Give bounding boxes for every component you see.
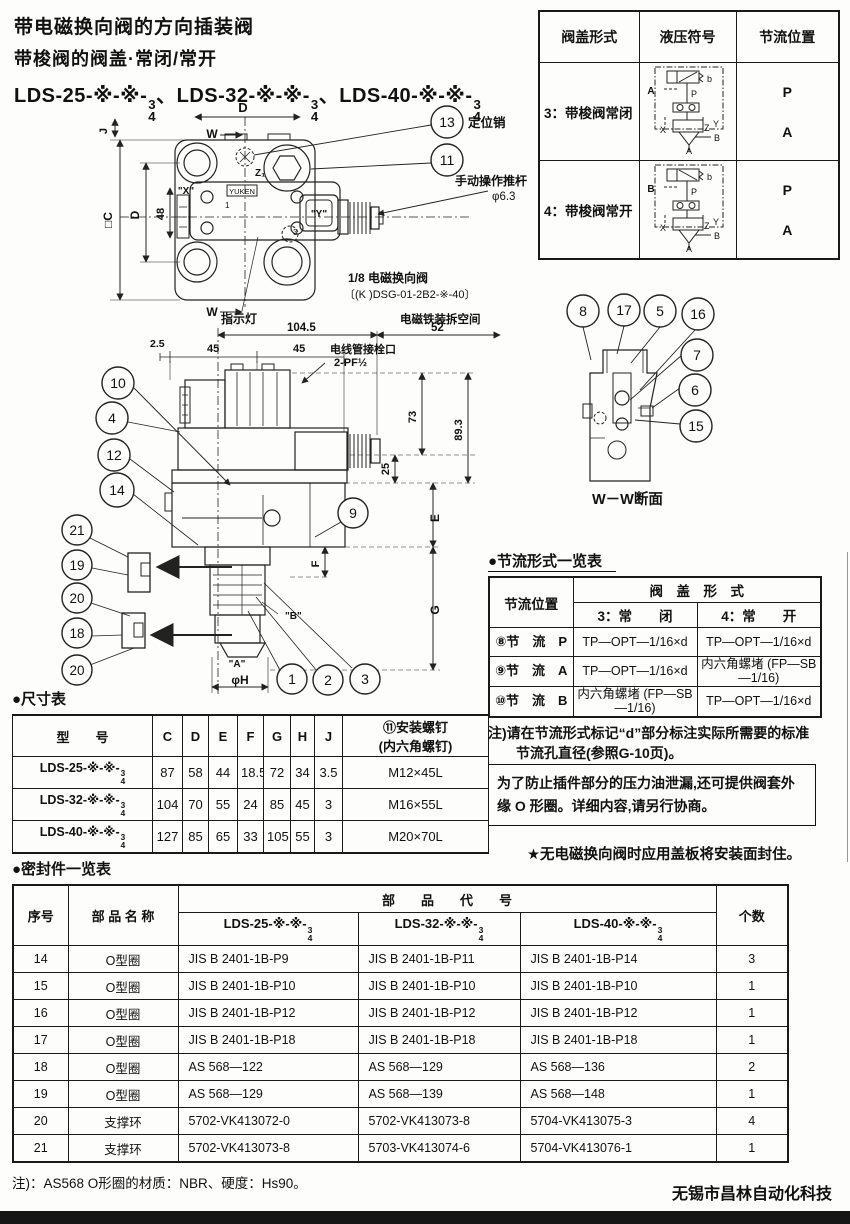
side-view-dimensions [62, 331, 500, 695]
dimension-table: 型 号 C D E F G H J ⑪安装螺钉(内六角螺钉) LDS-25-※-… [12, 714, 489, 854]
port-y-label: "Y" [311, 209, 327, 220]
cell-model: LDS-32-※-※-34 [13, 789, 153, 821]
cell-code-32: JIS B 2401-1B-P18 [358, 1027, 520, 1054]
datasheet-page: 带电磁换向阀的方向插装阀 带梭阀的阀盖·常闭/常开 LDS-25-※-※-34、… [0, 0, 850, 1224]
header-normally-closed: 3：常 闭 [573, 603, 697, 628]
dim-48-label: 48 [155, 208, 167, 220]
seal-parts-table: 序号 部 品 名 称 部 品 代 号 个数 LDS-25-※-※-34 LDS-… [12, 884, 789, 1163]
page-title: 带电磁换向阀的方向插装阀 [14, 12, 524, 39]
balloon-5: 5 [656, 303, 664, 319]
page-margin-rule [847, 552, 848, 862]
balloon-18: 18 [69, 626, 84, 641]
company-footer: 无锡市昌林自动化科技 [672, 1180, 832, 1204]
cell-no: 18 [13, 1054, 68, 1081]
cell-j: 3 [315, 789, 343, 821]
sym-port-side: B [714, 231, 720, 241]
cell-code-40: JIS B 2401-1B-P10 [520, 973, 716, 1000]
solenoid-valve-model: 〔(K )DSG-01-2B2-※-40〕 [344, 288, 475, 301]
dim-25: 25 [380, 463, 392, 475]
cover-table-header-row: 阀盖形式 液压符号 节流位置 [539, 11, 839, 63]
balloon-7: 7 [693, 347, 701, 363]
cell-e: 65 [209, 821, 238, 854]
dim-j-label: J [98, 128, 110, 134]
header-screw: ⑪安装螺钉(内六角螺钉) [343, 715, 489, 757]
cell-c: 104 [153, 789, 183, 821]
balloon-1: 1 [288, 671, 296, 687]
seal-row-14: 14 O型圈 JIS B 2401-1B-P9 JIS B 2401-1B-P1… [13, 946, 788, 973]
header-normally-open: 4：常 开 [697, 603, 821, 628]
balloon-16: 16 [690, 306, 706, 322]
cover-form-label: 4：带梭阀常开 [539, 161, 639, 260]
cell-d: 70 [183, 789, 209, 821]
cell-pos-a: ⑨节 流 A [489, 657, 573, 687]
cell-code-40: AS 568—136 [520, 1054, 716, 1081]
seal-row-17: 17 O型圈 JIS B 2401-1B-P18 JIS B 2401-1B-P… [13, 1027, 788, 1054]
seal-row-19: 19 O型圈 AS 568—129 AS 568—139 AS 568—148 … [13, 1081, 788, 1108]
cell-code-32: JIS B 2401-1B-P12 [358, 1000, 520, 1027]
hydraulic-symbol-open: B b P X Z Y B A [643, 161, 735, 253]
cell-j: 3 [315, 821, 343, 854]
cell-qty: 1 [716, 973, 788, 1000]
cell-code-32: AS 568—129 [358, 1054, 520, 1081]
seal-row-15: 15 O型圈 JIS B 2401-1B-P10 JIS B 2401-1B-P… [13, 973, 788, 1000]
dimension-row-lds40: LDS-40-※-※-34 127 85 65 33 105 55 3 M20×… [13, 821, 489, 854]
cell-name: O型圈 [68, 1054, 178, 1081]
cell-name: O型圈 [68, 1081, 178, 1108]
cell-no: 17 [13, 1027, 68, 1054]
dim-phi-h: φH [231, 673, 248, 687]
port-z1-label: Z₁ [255, 168, 265, 179]
sym-port-left: B [647, 184, 654, 195]
header-no: 序号 [13, 885, 68, 946]
cell-f: 24 [238, 789, 264, 821]
cell-code-32: 5703-VK413074-6 [358, 1135, 520, 1163]
cell-code-32: AS 568—139 [358, 1081, 520, 1108]
cell-qty: 3 [716, 946, 788, 973]
balloon-15: 15 [688, 418, 704, 434]
header-part-name: 部 品 名 称 [68, 885, 178, 946]
cell-code-25: JIS B 2401-1B-P18 [178, 1027, 358, 1054]
conduit-label: 电线管接栓口 [330, 342, 396, 356]
cell-qty: 1 [716, 1000, 788, 1027]
header-e: E [209, 715, 238, 757]
sym-port-p: P [691, 187, 697, 197]
cell-code-25: JIS B 2401-1B-P9 [178, 946, 358, 973]
dimension-row-lds25: LDS-25-※-※-34 87 58 44 18.5 72 34 3.5 M1… [13, 757, 489, 789]
cell-qty: 1 [716, 1081, 788, 1108]
sym-port-x: X [659, 125, 665, 135]
cover-form-table: 阀盖形式 液压符号 节流位置 3：带梭阀常闭 [538, 10, 840, 260]
cell-p-closed: TP—OPT—1/16×d [573, 628, 697, 657]
port-x-label: "X" [178, 186, 194, 197]
header-throttle-pos: 节流位置 [489, 577, 573, 628]
sym-port-bottom: A [685, 146, 691, 155]
header-model: 型 号 [13, 715, 153, 757]
seal-row-18: 18 O型圈 AS 568—122 AS 568—129 AS 568—136 … [13, 1054, 788, 1081]
balloon-10: 10 [110, 375, 126, 391]
cell-b-closed: 内六角螺堵 (FP—SB—1/16) [573, 686, 697, 716]
balloon-14: 14 [109, 482, 125, 498]
port-b-label: "B" [285, 611, 302, 622]
dim-52: 52 [431, 322, 444, 334]
cell-no: 21 [13, 1135, 68, 1163]
section-view-ww: 8 17 5 16 7 6 15 W－W断面 [545, 278, 845, 538]
cell-qty: 4 [716, 1108, 788, 1135]
throttle-table: 节流位置 阀 盖 形 式 3：常 闭 4：常 开 ⑧节 流 P TP—OPT—1… [488, 576, 822, 718]
cell-h: 45 [291, 789, 315, 821]
cell-code-25: JIS B 2401-1B-P12 [178, 1000, 358, 1027]
cell-d: 58 [183, 757, 209, 789]
cell-p-open: TP—OPT—1/16×d [697, 628, 821, 657]
throttle-note-line1: 注)请在节流形式标记“d”部分标注实际所需要的标准 [488, 723, 833, 743]
section-geometry [583, 350, 657, 481]
header-c: C [153, 715, 183, 757]
dim-45a: 45 [207, 343, 219, 355]
balloon-13: 13 [439, 114, 455, 130]
header-model-40: LDS-40-※-※-34 [520, 913, 716, 946]
dim-d-top-label: D [238, 100, 247, 115]
sym-port-x: X [659, 223, 665, 233]
cell-code-40: JIS B 2401-1B-P12 [520, 1000, 716, 1027]
sym-port-side: B [714, 133, 720, 143]
cell-e: 55 [209, 789, 238, 821]
cell-h: 34 [291, 757, 315, 789]
cell-c: 127 [153, 821, 183, 854]
dimension-block: ●尺寸表 型 号 C D E F G H J ⑪安装螺钉(内六角螺钉) LDS-… [12, 688, 492, 854]
spool-mark-1: 1 [225, 201, 230, 210]
throttle-table-title: ●节流形式一览表 [488, 550, 616, 572]
throttle-block: ●节流形式一览表 节流位置 阀 盖 形 式 3：常 闭 4：常 开 ⑧节 流 P… [488, 550, 833, 763]
sym-port-z: Z [704, 221, 710, 231]
seal-row-20: 20 支撑环 5702-VK413072-0 5702-VK413073-8 5… [13, 1108, 788, 1135]
header-h: H [291, 715, 315, 757]
header-model-25: LDS-25-※-※-34 [178, 913, 358, 946]
cell-code-40: 5704-VK413076-1 [520, 1135, 716, 1163]
page-subtitle: 带梭阀的阀盖·常闭/常开 [14, 45, 524, 71]
cell-screw: M20×70L [343, 821, 489, 854]
oring-option-note: 为了防止插件部分的压力油泄漏,还可提供阀套外缘 O 形圈。详细内容,请另行协商。 [488, 764, 816, 826]
header-part-code: 部 品 代 号 [178, 885, 716, 913]
seal-block: ●密封件一览表 序号 部 品 名 称 部 品 代 号 个数 LDS-25-※-※… [12, 858, 802, 1192]
cell-name: O型圈 [68, 973, 178, 1000]
spool-mark-3: 3 [293, 228, 298, 237]
cell-g: 105 [264, 821, 291, 854]
dim-89-3: 89.3 [453, 419, 465, 440]
cell-qty: 2 [716, 1054, 788, 1081]
balloon-20a: 20 [69, 591, 84, 606]
cover-form-label: 3：带梭阀常闭 [539, 63, 639, 161]
cell-code-25: AS 568—122 [178, 1054, 358, 1081]
sym-port-left: A [647, 86, 654, 97]
dimension-table-title: ●尺寸表 [12, 688, 492, 709]
dim-104-5: 104.5 [287, 322, 316, 334]
cell-c: 87 [153, 757, 183, 789]
cell-code-32: JIS B 2401-1B-P11 [358, 946, 520, 973]
dim-c-label: □C [101, 212, 115, 228]
cell-b-open: TP—OPT—1/16×d [697, 686, 821, 716]
position-p: P [740, 84, 836, 100]
dim-e: E [428, 514, 442, 522]
header-hydraulic-symbol: 液压符号 [639, 11, 736, 63]
hydraulic-symbol-closed: A b P X Z Y B A [643, 63, 735, 155]
balloon-19: 19 [69, 558, 84, 573]
hydraulic-symbol-cell: A b P X Z Y B A [639, 63, 736, 161]
port-a-label: "A" [229, 659, 246, 670]
cell-code-40: JIS B 2401-1B-P14 [520, 946, 716, 973]
seal-row-16: 16 O型圈 JIS B 2401-1B-P12 JIS B 2401-1B-P… [13, 1000, 788, 1027]
position-a: A [740, 222, 836, 238]
cell-code-40: AS 568—148 [520, 1081, 716, 1108]
throttle-header-row-1: 节流位置 阀 盖 形 式 [489, 577, 821, 603]
dim-45b: 45 [293, 343, 305, 355]
balloon-8: 8 [579, 303, 587, 319]
cell-no: 20 [13, 1108, 68, 1135]
cell-g: 72 [264, 757, 291, 789]
sym-port-p: P [691, 89, 697, 99]
cell-h: 55 [291, 821, 315, 854]
balloon-6: 6 [691, 382, 699, 398]
cell-j: 3.5 [315, 757, 343, 789]
balloon-2: 2 [324, 672, 332, 688]
seal-header-row-1: 序号 部 品 名 称 部 品 代 号 个数 [13, 885, 788, 913]
position-a: A [740, 124, 836, 140]
dim-d-left-label: D [128, 210, 142, 219]
dim-f: F [310, 560, 322, 567]
cover-row-normally-closed: 3：带梭阀常闭 A b [539, 63, 839, 161]
cell-code-40: 5704-VK413075-3 [520, 1108, 716, 1135]
dim-w-top-label: W [206, 127, 218, 141]
sym-port-b: b [707, 172, 712, 182]
throttle-row-a: ⑨节 流 A TP—OPT—1/16×d 内六角螺堵 (FP—SB—1/16) [489, 657, 821, 687]
balloon-20b: 20 [69, 663, 84, 678]
balloon-9: 9 [349, 505, 357, 521]
header-throttle-position: 节流位置 [736, 11, 839, 63]
seal-row-21: 21 支撑环 5702-VK413073-8 5703-VK413074-6 5… [13, 1135, 788, 1163]
balloon-11: 11 [440, 152, 455, 168]
cell-screw: M16×55L [343, 789, 489, 821]
seal-table-title: ●密封件一览表 [12, 858, 802, 879]
cell-g: 85 [264, 789, 291, 821]
manual-rod-dia: φ6.3 [492, 191, 515, 203]
header-g: G [264, 715, 291, 757]
hydraulic-symbol-cell: B b P X Z Y B A [639, 161, 736, 260]
cell-d: 85 [183, 821, 209, 854]
cell-no: 19 [13, 1081, 68, 1108]
throttle-position-cell: P A [736, 63, 839, 161]
cell-name: 支撑环 [68, 1135, 178, 1163]
indicator-lamp-label: 指示灯 [221, 311, 257, 326]
throttle-row-p: ⑧节 流 P TP—OPT—1/16×d TP—OPT—1/16×d [489, 628, 821, 657]
balloon-3: 3 [361, 671, 369, 687]
header-cover-form-span: 阀 盖 形 式 [573, 577, 821, 603]
cell-e: 44 [209, 757, 238, 789]
dim-w-bottom-label: W [206, 305, 218, 319]
cell-code-25: AS 568—129 [178, 1081, 358, 1108]
header-model-32: LDS-32-※-※-34 [358, 913, 520, 946]
conduit-size: 2-PF½ [334, 357, 367, 369]
cell-a-closed: TP—OPT—1/16×d [573, 657, 697, 687]
cell-model: LDS-25-※-※-34 [13, 757, 153, 789]
locating-pin-label: 定位销 [467, 115, 506, 130]
header-d: D [183, 715, 209, 757]
cell-f: 33 [238, 821, 264, 854]
header-j: J [315, 715, 343, 757]
dimension-header-row: 型 号 C D E F G H J ⑪安装螺钉(内六角螺钉) [13, 715, 489, 757]
dimension-row-lds32: LDS-32-※-※-34 104 70 55 24 85 45 3 M16×5… [13, 789, 489, 821]
cell-name: O型圈 [68, 1027, 178, 1054]
cell-name: O型圈 [68, 1000, 178, 1027]
cell-code-32: JIS B 2401-1B-P10 [358, 973, 520, 1000]
engineering-drawing-main: D W W J □C D 48 "X" "Y" Z₁ 1 3 YUKEN 13 … [0, 95, 535, 720]
cell-code-25: 5702-VK413073-8 [178, 1135, 358, 1163]
sym-port-y: Y [713, 217, 719, 227]
cell-code-32: 5702-VK413073-8 [358, 1108, 520, 1135]
cell-name: O型圈 [68, 946, 178, 973]
section-caption: W－W断面 [592, 490, 663, 508]
page-bottom-edge [0, 1211, 850, 1224]
header-qty: 个数 [716, 885, 788, 946]
header-f: F [238, 715, 264, 757]
sym-port-bottom: A [685, 244, 691, 253]
cell-f: 18.5 [238, 757, 264, 789]
throttle-row-b: ⑩节 流 B 内六角螺堵 (FP—SB—1/16) TP—OPT—1/16×d [489, 686, 821, 716]
balloon-4: 4 [108, 410, 116, 426]
balloon-12: 12 [106, 447, 122, 463]
cell-qty: 1 [716, 1027, 788, 1054]
balloon-17: 17 [616, 302, 632, 318]
cell-model: LDS-40-※-※-34 [13, 821, 153, 854]
header-cover-form: 阀盖形式 [539, 11, 639, 63]
cell-qty: 1 [716, 1135, 788, 1163]
position-p: P [740, 182, 836, 198]
manual-rod-label: 手动操作推杆 [455, 173, 527, 188]
cell-code-40: JIS B 2401-1B-P18 [520, 1027, 716, 1054]
solenoid-valve-label: 1/8 电磁换向阀 [348, 270, 428, 285]
cell-code-25: JIS B 2401-1B-P10 [178, 973, 358, 1000]
cell-name: 支撑环 [68, 1108, 178, 1135]
sym-port-b: b [707, 74, 712, 84]
cell-code-25: 5702-VK413072-0 [178, 1108, 358, 1135]
cell-a-open: 内六角螺堵 (FP—SB—1/16) [697, 657, 821, 687]
balloon-21: 21 [69, 523, 84, 538]
dim-2-5: 2.5 [150, 338, 165, 350]
throttle-note-line2: 节流孔直径(参照G-10页)。 [516, 743, 833, 763]
cell-pos-b: ⑩节 流 B [489, 686, 573, 716]
sym-port-y: Y [713, 119, 719, 129]
brand-label: YUKEN [229, 187, 255, 196]
dim-73: 73 [407, 411, 419, 423]
throttle-position-cell: P A [736, 161, 839, 260]
cell-no: 16 [13, 1000, 68, 1027]
cell-screw: M12×45L [343, 757, 489, 789]
sym-port-z: Z [704, 123, 710, 133]
cell-no: 15 [13, 973, 68, 1000]
cover-row-normally-open: 4：带梭阀常开 B b [539, 161, 839, 260]
cell-pos-p: ⑧节 流 P [489, 628, 573, 657]
dim-g: G [428, 605, 442, 614]
cell-no: 14 [13, 946, 68, 973]
